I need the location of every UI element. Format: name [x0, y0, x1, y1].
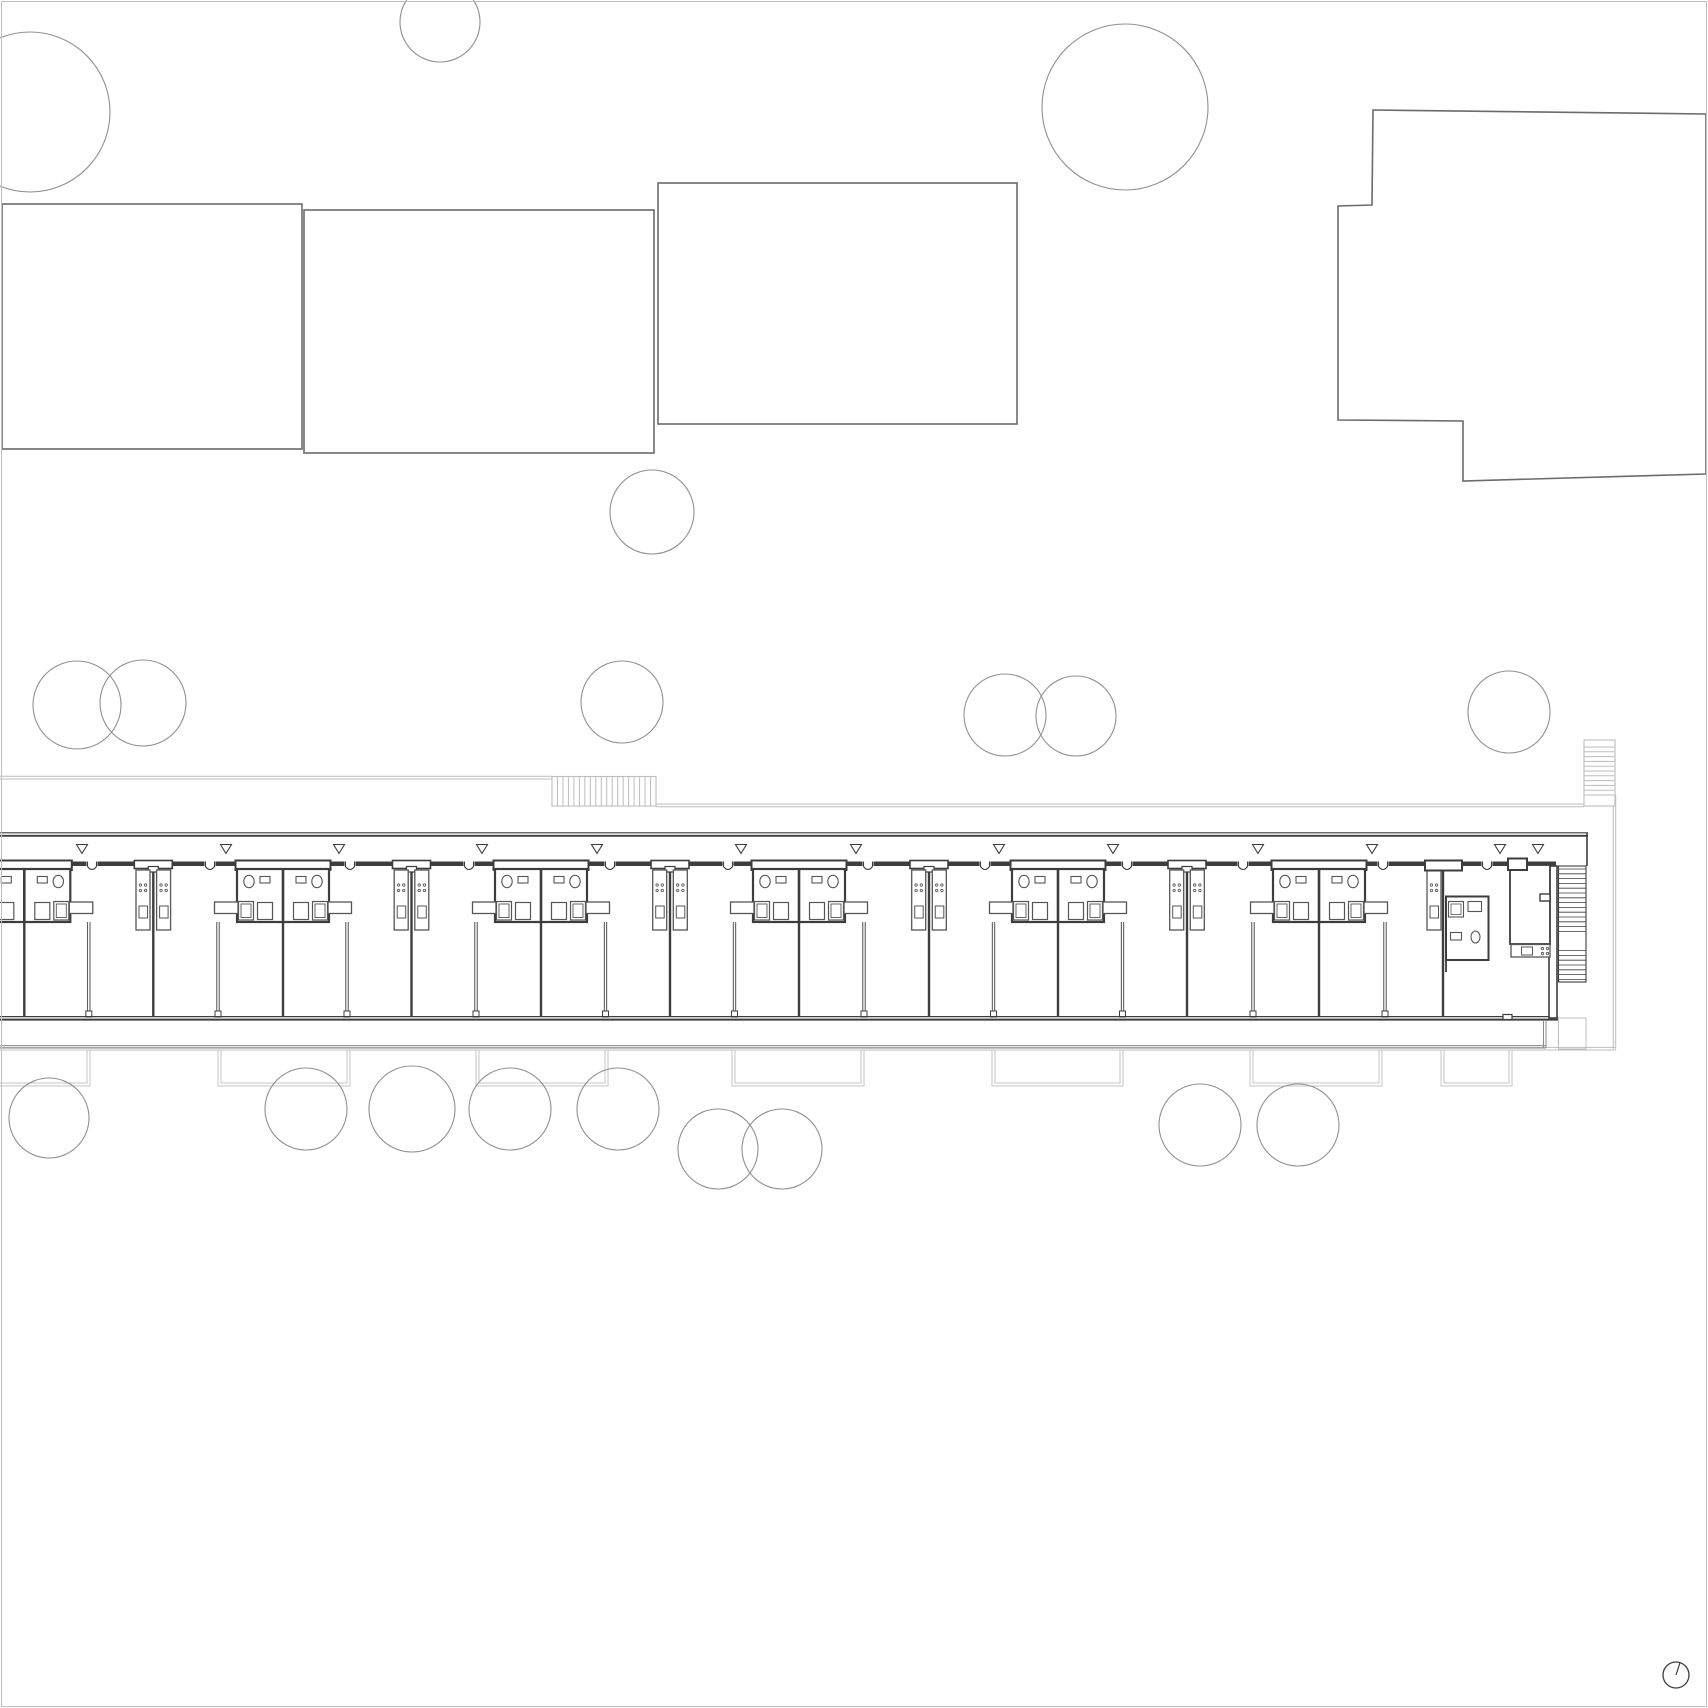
- kitchen-counter: [653, 870, 667, 930]
- tree: [33, 661, 121, 749]
- patios: [0, 1050, 1512, 1086]
- toilet: [312, 875, 322, 887]
- washbasin-unit: [294, 903, 309, 920]
- kitchen-counter: [394, 870, 408, 930]
- kitchen-sink: [139, 906, 148, 918]
- patio-inner: [735, 1050, 861, 1083]
- entry-door: [606, 862, 615, 870]
- patio-inner: [995, 1050, 1120, 1083]
- neighbor-building: [658, 183, 1017, 424]
- cistern: [1071, 877, 1081, 884]
- patio: [732, 1050, 864, 1086]
- washbasin-unit: [1294, 903, 1309, 920]
- entry-triangle: [1367, 845, 1378, 854]
- entry-door: [1123, 862, 1132, 870]
- toilet: [1280, 875, 1290, 887]
- neighbor-building: [304, 210, 654, 453]
- entry-door: [346, 862, 355, 870]
- closet-bar: [473, 902, 497, 914]
- entry-triangle: [592, 845, 603, 854]
- entry-door: [981, 862, 990, 870]
- window-mullions: [86, 922, 1388, 1017]
- patio-inner: [1253, 1050, 1379, 1083]
- site-trees: [0, 0, 1550, 1189]
- kitchen-sink: [1173, 906, 1182, 918]
- toilet: [244, 875, 254, 887]
- kitchen-sink: [915, 906, 924, 918]
- closet-bar: [1251, 902, 1275, 914]
- closet-bar: [990, 902, 1014, 914]
- entry-door: [206, 862, 215, 870]
- closet-bar: [69, 902, 93, 914]
- entry-triangle: [77, 845, 88, 854]
- neighbor-building: [2, 204, 302, 449]
- tree: [964, 674, 1046, 756]
- cistern: [1332, 877, 1342, 884]
- cistern: [518, 877, 528, 884]
- tree: [469, 1068, 551, 1150]
- sink: [1451, 933, 1462, 941]
- kitchen-sink: [418, 906, 427, 918]
- toilet: [828, 875, 838, 887]
- gallery-entry-markers: [77, 845, 1544, 854]
- kitchen-sink: [676, 906, 685, 918]
- tree: [369, 1066, 455, 1152]
- kitchen-counter: [1170, 870, 1184, 930]
- washbasin-unit: [810, 903, 825, 920]
- patio: [0, 1050, 90, 1086]
- cistern: [37, 877, 47, 884]
- cistern: [812, 877, 822, 884]
- patio-inner: [479, 1050, 605, 1083]
- kitchen-sink: [1430, 906, 1439, 918]
- tree: [581, 661, 663, 743]
- north-arrow-needle: [1676, 1663, 1680, 1675]
- tree: [610, 470, 694, 554]
- kitchen-sink: [935, 906, 944, 918]
- entry-triangle: [851, 845, 862, 854]
- toilet: [1087, 875, 1097, 887]
- washbasin-unit: [552, 903, 567, 920]
- patio: [1441, 1050, 1512, 1086]
- entry-triangle: [334, 845, 345, 854]
- closet-bar: [1103, 902, 1127, 914]
- kitchen-counter: [912, 870, 926, 930]
- patio-inner: [1444, 1050, 1509, 1083]
- north-arrow: [1663, 1662, 1689, 1688]
- entry-door: [1239, 862, 1248, 870]
- entry-triangle: [1495, 845, 1506, 854]
- washbasin-unit: [774, 903, 789, 920]
- stair-outline: [1584, 740, 1615, 806]
- cistern: [1, 877, 11, 884]
- patio-inner: [221, 1050, 347, 1083]
- kitchen-sink: [397, 906, 406, 918]
- washbasin-unit: [1069, 903, 1084, 920]
- tree: [265, 1068, 347, 1150]
- wall-block: [1508, 859, 1527, 871]
- toilet: [760, 875, 770, 887]
- tree: [1468, 671, 1550, 753]
- closet-bar: [328, 902, 352, 914]
- tree: [9, 1078, 89, 1158]
- tree: [0, 32, 110, 192]
- floor-plan-canvas: [0, 0, 1708, 1708]
- entry-triangle: [994, 845, 1005, 854]
- entry-door: [1483, 862, 1492, 870]
- washbasin-unit: [1468, 902, 1482, 912]
- tree: [100, 660, 186, 746]
- south-facade: [0, 1017, 1558, 1048]
- entry-triangle: [1253, 845, 1264, 854]
- kitchen-counter: [932, 870, 946, 930]
- kitchen-counter: [1427, 870, 1441, 930]
- toilet: [1471, 931, 1480, 943]
- patio: [1250, 1050, 1382, 1086]
- cistern: [776, 877, 786, 884]
- neighbor-building: [1338, 110, 1706, 481]
- cistern: [1035, 877, 1045, 884]
- entry-triangle: [1533, 845, 1544, 854]
- washbasin-unit: [35, 903, 50, 920]
- closet-bar: [844, 902, 868, 914]
- entry-triangle: [477, 845, 488, 854]
- core-notch: [1540, 894, 1550, 901]
- tree: [678, 1109, 758, 1189]
- kitchen-sink: [656, 906, 665, 918]
- neighbor-buildings: [2, 110, 1706, 481]
- washbasin-unit: [0, 903, 14, 920]
- stair-base: [1559, 1018, 1587, 1049]
- entry-door: [88, 862, 97, 870]
- closet-bar: [731, 902, 755, 914]
- kitchen-counter: [136, 870, 150, 930]
- cistern: [260, 877, 270, 884]
- toilet: [1019, 875, 1029, 887]
- toilet: [570, 875, 580, 887]
- closet-bar: [215, 902, 239, 914]
- kitchen-sink: [160, 906, 169, 918]
- east-end: [1425, 859, 1557, 1020]
- closet-bar: [586, 902, 610, 914]
- tree: [742, 1109, 822, 1189]
- site-plan-page: [0, 0, 1708, 1708]
- toilet: [502, 875, 512, 887]
- washbasin-unit: [258, 903, 273, 920]
- tree: [1042, 24, 1208, 190]
- east-egress-stair: [1559, 866, 1587, 1049]
- washbasin-unit: [1330, 903, 1345, 920]
- entry-door: [864, 862, 873, 870]
- gallery-access-stair: [552, 777, 656, 807]
- cistern: [1296, 877, 1306, 884]
- toilet: [1348, 875, 1358, 887]
- tree: [400, 0, 480, 62]
- entry-door: [465, 862, 474, 870]
- tree: [577, 1068, 659, 1150]
- patio: [218, 1050, 350, 1086]
- cistern: [554, 877, 564, 884]
- tree: [1159, 1084, 1241, 1166]
- kitchen-counter: [673, 870, 687, 930]
- entry-door: [724, 862, 733, 870]
- cistern: [296, 877, 306, 884]
- entry-triangle: [221, 845, 232, 854]
- kitchen-counter: [415, 870, 429, 930]
- toilet: [53, 875, 63, 887]
- kitchen-counter: [1190, 870, 1204, 930]
- kitchen-counter: [157, 870, 171, 930]
- patio: [992, 1050, 1123, 1086]
- stair-core: [1510, 865, 1550, 944]
- entry-triangle: [1108, 845, 1119, 854]
- closet-bar: [1364, 902, 1388, 914]
- tree: [1036, 676, 1116, 756]
- washbasin-unit: [516, 903, 531, 920]
- stair-outline: [552, 777, 656, 807]
- entry-door: [1379, 862, 1388, 870]
- kitchen-sink: [1522, 947, 1533, 955]
- tree: [1257, 1084, 1339, 1166]
- wall-block: [1425, 861, 1462, 871]
- northeast-exterior-stair: [1584, 740, 1615, 806]
- washbasin-unit: [1033, 903, 1048, 920]
- entry-triangle: [736, 845, 747, 854]
- kitchen-sink: [1193, 906, 1202, 918]
- threshold: [1503, 1015, 1512, 1020]
